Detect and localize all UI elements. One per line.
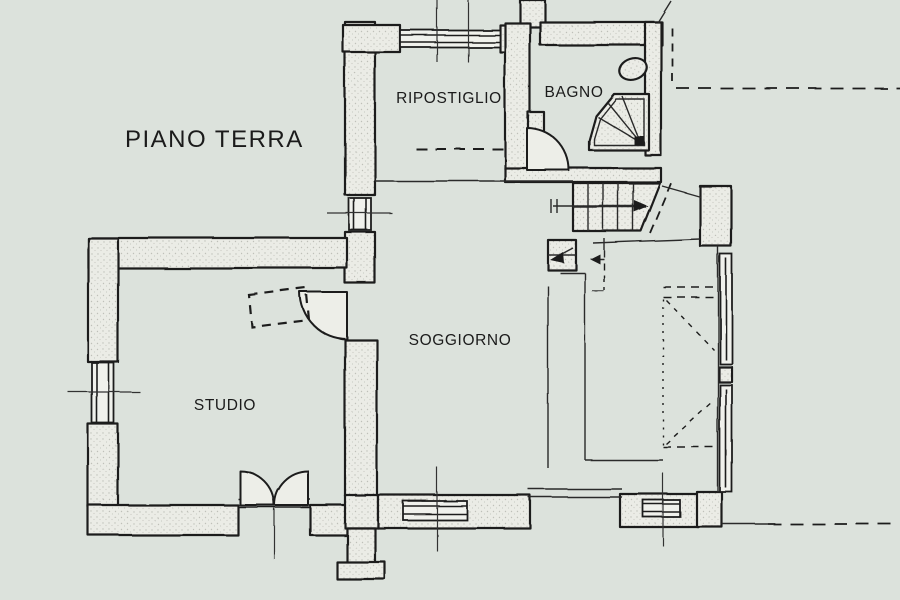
room-label-soggiorno: SOGGIORNO xyxy=(409,332,512,349)
wall xyxy=(88,238,118,362)
bagno-door-swing xyxy=(527,128,569,170)
floor-plan: PIANO TERRA RIPOSTIGLIO BAGNO SOGGIORNO … xyxy=(0,0,900,600)
wall xyxy=(343,25,400,52)
wall-pier xyxy=(345,495,378,528)
wall-stub xyxy=(347,528,375,564)
glazing-mullion xyxy=(719,367,732,382)
window-ripostiglio-north xyxy=(400,30,500,47)
window-soggiorno-west xyxy=(349,198,371,230)
staircase xyxy=(548,181,701,291)
sliding-door-swing-dashes xyxy=(663,287,716,447)
floor-zone-outline xyxy=(560,273,663,460)
wall xyxy=(345,232,375,283)
room-label-bagno: BAGNO xyxy=(545,84,604,101)
wall xyxy=(310,505,347,535)
property-boundary-dashed xyxy=(672,28,900,524)
step-lines xyxy=(528,489,622,497)
floor-plan-page: PIANO TERRA RIPOSTIGLIO BAGNO SOGGIORNO … xyxy=(0,0,900,600)
bath-fixtures xyxy=(589,55,650,150)
wall xyxy=(88,424,118,507)
wall xyxy=(540,22,662,45)
double-door-right-leaf xyxy=(274,471,308,505)
window-studio-west xyxy=(92,363,114,423)
wall xyxy=(88,505,238,535)
axis-arrow xyxy=(590,238,604,291)
wall xyxy=(700,186,731,246)
walls xyxy=(88,0,732,579)
room-label-studio: STUDIO xyxy=(194,397,256,414)
plan-drawing xyxy=(68,0,900,579)
wall xyxy=(697,492,722,527)
wall-footing xyxy=(337,562,385,579)
corner-shower-icon xyxy=(589,94,649,150)
shower-drain xyxy=(634,136,644,145)
window-southeast xyxy=(643,500,680,517)
roof-edge-line xyxy=(658,1,671,22)
wall xyxy=(345,340,377,496)
doors xyxy=(240,128,569,505)
double-door-left-leaf xyxy=(240,471,274,505)
plan-title: PIANO TERRA xyxy=(125,126,304,153)
room-label-ripostiglio: RIPOSTIGLIO xyxy=(396,90,502,107)
wall xyxy=(88,238,347,268)
window-soggiorno-south xyxy=(403,501,467,520)
